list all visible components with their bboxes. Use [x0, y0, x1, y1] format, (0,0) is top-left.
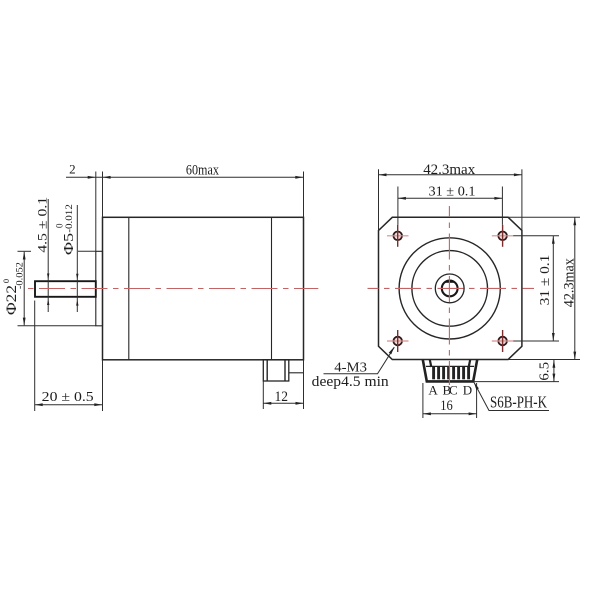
svg-text:6.5: 6.5: [538, 362, 553, 381]
svg-text:deep4.5 min: deep4.5 min: [312, 374, 390, 390]
svg-text:0: 0: [1, 279, 11, 283]
svg-text:42.3max: 42.3max: [562, 258, 578, 307]
svg-text:2: 2: [69, 162, 76, 177]
svg-text:-0.012: -0.012: [64, 204, 74, 233]
svg-text:C: C: [449, 383, 458, 398]
svg-text:-0.052: -0.052: [14, 262, 24, 289]
svg-text:20 ± 0.5: 20 ± 0.5: [42, 390, 94, 405]
svg-text:31 ± 0.1: 31 ± 0.1: [429, 185, 476, 200]
svg-text:A: A: [428, 383, 438, 398]
svg-text:Φ5: Φ5: [62, 233, 77, 255]
svg-text:S6B-PH-K: S6B-PH-K: [490, 392, 548, 411]
svg-text:60max: 60max: [186, 163, 219, 179]
svg-text:12: 12: [274, 389, 288, 405]
svg-text:42.3max: 42.3max: [423, 162, 475, 178]
svg-text:D: D: [463, 383, 472, 398]
svg-text:16: 16: [440, 398, 453, 414]
svg-text:31 ± 0.1: 31 ± 0.1: [538, 255, 553, 306]
svg-text:4.5 ± 0.1: 4.5 ± 0.1: [34, 197, 49, 253]
